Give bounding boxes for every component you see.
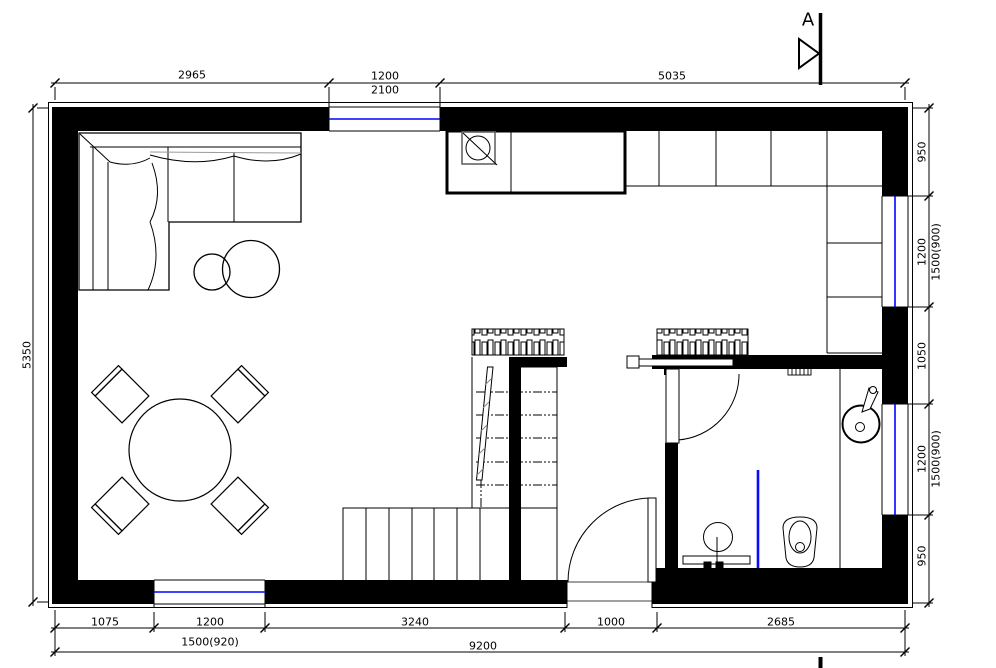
stair-break-symbol [477,367,494,480]
window-top [329,102,440,131]
dim-right-1500-900-upper: 1500(900) [931,223,942,281]
dining-table [129,399,231,501]
dining-chair [92,366,149,423]
stairs-lower-flight [343,508,510,582]
bathroom [683,366,880,568]
stair-wall-cap [509,357,567,367]
stairs [343,357,557,582]
window-right-lower [882,404,912,515]
dim-right-950-lower: 950 [917,546,928,567]
section-marker-label: A [802,10,814,31]
dining-chair [211,477,268,534]
wall-bottom-mid [265,580,567,604]
dim-top-5035: 5035 [658,71,686,82]
dining-chair [92,477,149,534]
coffee-tables [194,241,280,298]
kitchen-sink-icon [462,132,497,165]
dim-right-1500-900-lower: 1500(900) [931,430,942,488]
radiator [472,329,564,355]
bathroom-left-wall [665,443,678,568]
coffee-table-large [223,241,280,298]
interior-walls [509,355,882,582]
kitchen-counter-main [447,131,625,193]
wall-bottom-left [52,580,154,604]
vessel-sink [843,387,880,443]
dim-right-1050: 1050 [917,342,928,370]
dim-right-1200-lower: 1200 [917,445,928,473]
dim-right-950-upper: 950 [917,142,928,163]
wall-left [52,107,78,604]
radiator [657,329,748,355]
dim-top-1200: 1200 [371,71,399,82]
floor-plan-canvas: 2965 1200 2100 5035 5350 950 1200 1500(9… [0,0,996,668]
dim-bottom-2685: 2685 [767,617,795,628]
wall-right-upper [882,107,908,196]
door-swing-arc [568,498,652,582]
bathroom-door [627,356,739,443]
stair-wall [509,357,521,582]
floor-plan-drawing [0,0,996,668]
toilet [783,517,817,567]
dim-bottom-1500-920: 1500(920) [181,637,239,648]
sofa [79,133,301,290]
dim-bottom-3240: 3240 [401,617,429,628]
window-bottom [154,580,265,608]
dim-bottom-9200-total: 9200 [469,641,497,652]
wall-bathroom-bottom [652,568,882,582]
entry-door [567,498,656,608]
door-track-cap [627,356,639,368]
kitchen [447,131,882,353]
door-leaf [666,369,679,443]
wall-top-left [52,107,329,131]
dim-top-2100: 2100 [371,85,399,96]
dim-bottom-1075: 1075 [91,617,119,628]
dim-top-2965: 2965 [178,70,206,81]
door-track-bar [628,359,733,366]
washbasin [683,523,750,569]
radiators [472,329,748,355]
dim-bottom-1000: 1000 [597,617,625,628]
door-swing-arc [678,374,739,440]
section-marker-bottom [819,657,823,668]
door-leaf [648,498,656,582]
dim-left-5350: 5350 [22,341,33,369]
dining-set [92,366,269,535]
wall-bottom-right [652,580,908,604]
section-arrow-icon [799,39,819,68]
wall-right-middle [882,307,908,404]
window-right-upper [882,196,912,307]
wall-top-right [440,107,908,131]
dining-chair [211,366,268,423]
dim-bottom-1200: 1200 [196,617,224,628]
dim-right-1200-upper: 1200 [917,238,928,266]
